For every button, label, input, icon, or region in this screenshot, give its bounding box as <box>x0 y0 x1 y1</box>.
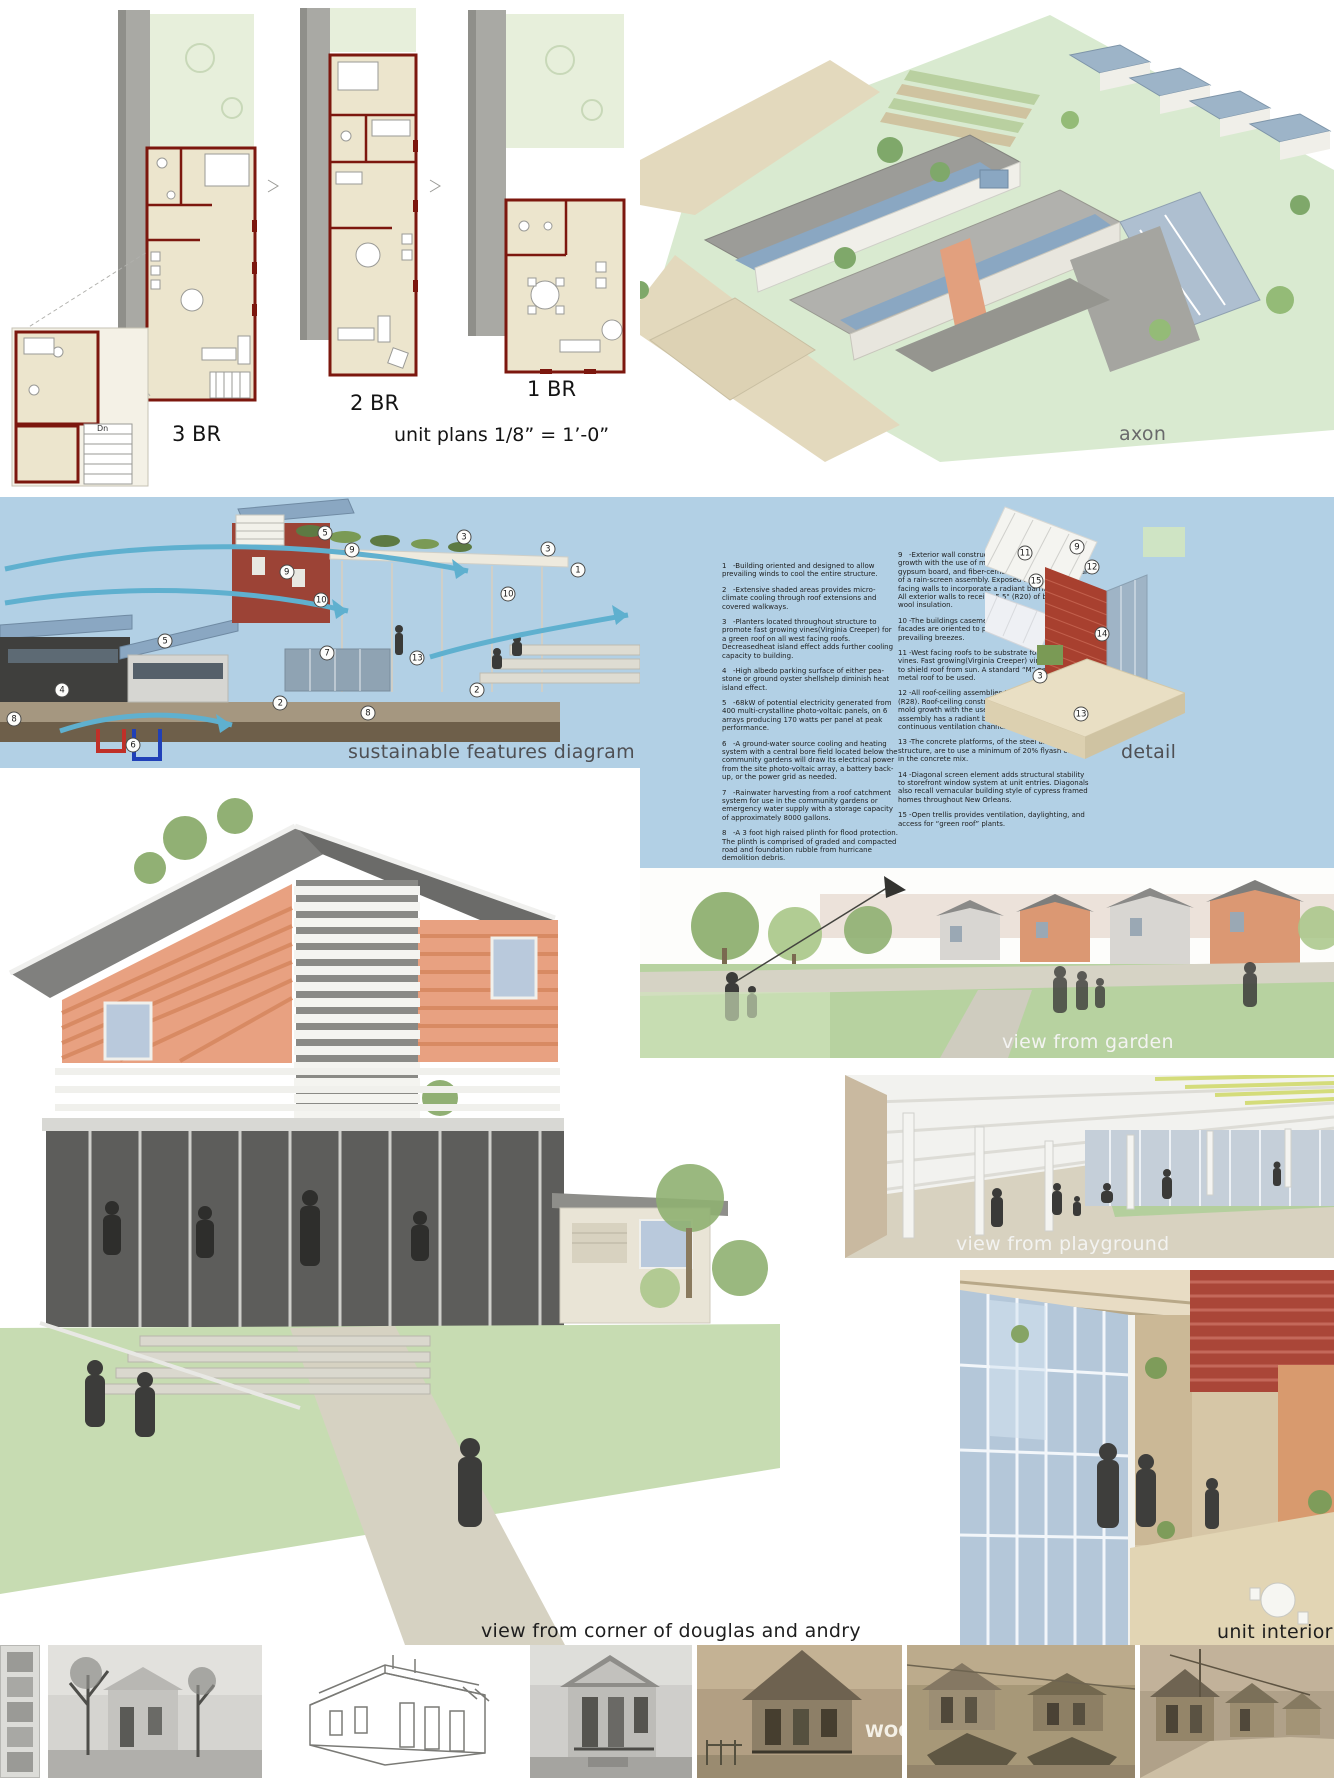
axon-drawing <box>640 0 1334 465</box>
feature-number: 9 <box>898 551 909 559</box>
callout-number: 10 <box>501 587 516 602</box>
callout-number: 11 <box>1018 546 1033 561</box>
feature-item: 15-Open trellis provides ventilation, da… <box>898 811 1092 828</box>
feature-text: -68kW of potential electricity generated… <box>722 699 892 732</box>
callout-number: 13 <box>410 650 425 665</box>
callout-number: 10 <box>314 592 329 607</box>
filmstrip-graphic <box>0 1645 40 1778</box>
feature-item: 3-Planters located throughout structure … <box>722 618 898 660</box>
corner-view-caption: view from corner of douglas and andry <box>481 1620 861 1642</box>
callout-number: 1 <box>570 562 585 577</box>
unit-plans-panel <box>0 0 640 497</box>
feature-text: -Planters located throughout structure t… <box>722 618 893 660</box>
unit-plans-scale-note: unit plans 1/8” = 1’-0” <box>394 424 609 446</box>
detail-caption: detail <box>1121 741 1176 763</box>
balcony-rails <box>55 1068 560 1111</box>
photo-strip: WOO <box>0 1645 1334 1778</box>
callout-number: 4 <box>55 682 70 697</box>
callout-number: 3 <box>540 542 555 557</box>
axon-panel <box>640 0 1334 465</box>
diagram-callouts: 59331910105713422886 <box>0 497 640 768</box>
section-mark <box>268 180 278 192</box>
callout-number: 3 <box>1033 669 1048 684</box>
callout-number: 8 <box>361 705 376 720</box>
garden-buildings <box>936 880 1304 966</box>
plan-1br <box>468 10 624 374</box>
callout-number: 13 <box>1074 707 1089 722</box>
historic-photo-gable-shotgun <box>530 1645 692 1778</box>
photo-sign-text: WOO <box>865 1722 902 1742</box>
garden-view-drawing <box>640 868 1334 1058</box>
label-1br: 1 BR <box>527 377 576 401</box>
feature-number: 2 <box>722 586 733 594</box>
feature-number: 12 <box>898 689 909 697</box>
feature-item: 4-High albedo parking surface of either … <box>722 667 898 692</box>
garden-view-caption: view from garden <box>1002 1031 1174 1053</box>
feature-text: -High albedo parking surface of either p… <box>722 667 889 692</box>
historic-photo-debris <box>907 1645 1135 1778</box>
callout-number: 8 <box>7 711 22 726</box>
presentation-board: Dn 3 BR 2 BR 1 BR unit plans 1/8” = 1’-0… <box>0 0 1334 1778</box>
feature-number: 5 <box>722 699 733 707</box>
feature-number: 6 <box>722 740 733 748</box>
stair-direction-label: Dn <box>97 424 108 433</box>
feature-number: 1 <box>722 562 733 570</box>
callout-number: 9 <box>279 565 294 580</box>
callout-number: 15 <box>1029 574 1044 589</box>
feature-number: 4 <box>722 667 733 675</box>
historic-photo-steep-gable: WOO <box>697 1645 902 1778</box>
detail-callouts: 119121514313 <box>985 497 1185 768</box>
label-2br: 2 BR <box>350 391 399 415</box>
feature-number: 14 <box>898 771 909 779</box>
section-mark <box>430 180 440 192</box>
feature-item: 14-Diagonal screen element adds structur… <box>898 771 1092 805</box>
dining-table <box>1261 1583 1295 1617</box>
callout-number: 3 <box>457 530 472 545</box>
callout-number: 12 <box>1085 559 1100 574</box>
axon-caption: axon <box>1119 423 1166 445</box>
feature-number: 3 <box>722 618 733 626</box>
unit-plans-drawing <box>0 0 640 497</box>
callout-number: 7 <box>320 646 335 661</box>
feature-item: 2-Extensive shaded areas provides micro-… <box>722 586 898 611</box>
unit-interior-drawing <box>960 1270 1334 1645</box>
detail-panel: 119121514313 <box>985 497 1185 768</box>
historic-photo-house-trees <box>48 1645 262 1778</box>
feature-number: 13 <box>898 738 909 746</box>
street-road <box>1140 1737 1334 1778</box>
callout-number: 6 <box>126 737 141 752</box>
label-3br: 3 BR <box>172 422 221 446</box>
features-caption: sustainable features diagram <box>348 741 635 763</box>
playground-view-drawing <box>845 1075 1334 1258</box>
feature-text: -Building oriented and designed to allow… <box>722 562 878 578</box>
historic-photo-street <box>1140 1645 1334 1778</box>
feature-text: -Extensive shaded areas provides micro-c… <box>722 586 876 611</box>
unit-interior-render <box>960 1270 1334 1645</box>
feature-text: -Diagonal screen element adds structural… <box>898 771 1089 804</box>
plan-2br <box>300 8 418 375</box>
feature-text: -Open trellis provides ventilation, dayl… <box>898 811 1085 827</box>
callout-number: 14 <box>1095 627 1110 642</box>
sustainable-features-diagram: 59331910105713422886 <box>0 497 640 768</box>
feature-number: 15 <box>898 811 909 819</box>
feature-item: 1-Building oriented and designed to allo… <box>722 562 898 579</box>
callout-number: 9 <box>1070 540 1085 555</box>
feature-number: 11 <box>898 649 909 657</box>
callout-number: 2 <box>273 695 288 710</box>
playground-view-render <box>845 1075 1334 1258</box>
unit-interior-caption: unit interior <box>1217 1621 1333 1643</box>
callout-number: 5 <box>158 633 173 648</box>
feature-item: 5-68kW of potential electricity generate… <box>722 699 898 733</box>
garden-view-render <box>640 868 1334 1058</box>
shotgun-house-line-drawing <box>275 1645 525 1778</box>
feature-number: 10 <box>898 617 909 625</box>
callout-number: 5 <box>318 526 333 541</box>
callout-number: 9 <box>345 543 360 558</box>
playground-view-caption: view from playground <box>956 1233 1170 1255</box>
callout-number: 2 <box>469 682 484 697</box>
